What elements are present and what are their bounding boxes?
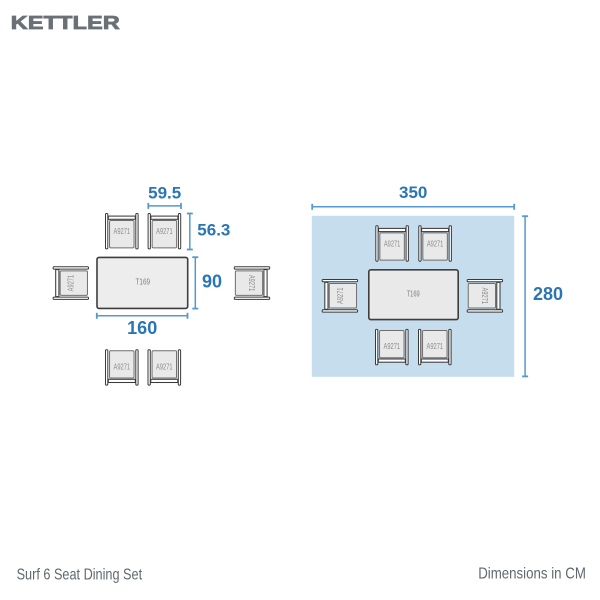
svg-text:A9271: A9271 (427, 239, 444, 248)
svg-text:A9271: A9271 (384, 239, 401, 248)
svg-text:350: 350 (399, 183, 427, 202)
svg-text:A9271: A9271 (336, 288, 345, 305)
svg-text:A9271: A9271 (156, 227, 173, 236)
svg-text:280: 280 (533, 284, 563, 304)
svg-text:A9271: A9271 (384, 342, 401, 351)
svg-text:T169: T169 (407, 290, 420, 299)
svg-text:A9271: A9271 (67, 275, 76, 292)
svg-text:90: 90 (202, 272, 222, 292)
svg-text:A9271: A9271 (114, 227, 131, 236)
svg-text:A9271: A9271 (247, 275, 256, 292)
svg-text:A9271: A9271 (156, 363, 173, 372)
svg-text:A9271: A9271 (114, 363, 131, 372)
svg-text:160: 160 (127, 318, 157, 338)
svg-text:T169: T169 (136, 278, 151, 287)
svg-text:Surf 6 Seat Dining Set: Surf 6 Seat Dining Set (17, 566, 143, 583)
svg-text:59.5: 59.5 (148, 184, 181, 203)
svg-text:KETTLER: KETTLER (11, 13, 120, 33)
svg-text:A9271: A9271 (427, 342, 444, 351)
svg-text:A9271: A9271 (480, 288, 489, 305)
svg-text:Dimensions in CM: Dimensions in CM (478, 566, 586, 583)
svg-text:56.3: 56.3 (197, 221, 230, 240)
